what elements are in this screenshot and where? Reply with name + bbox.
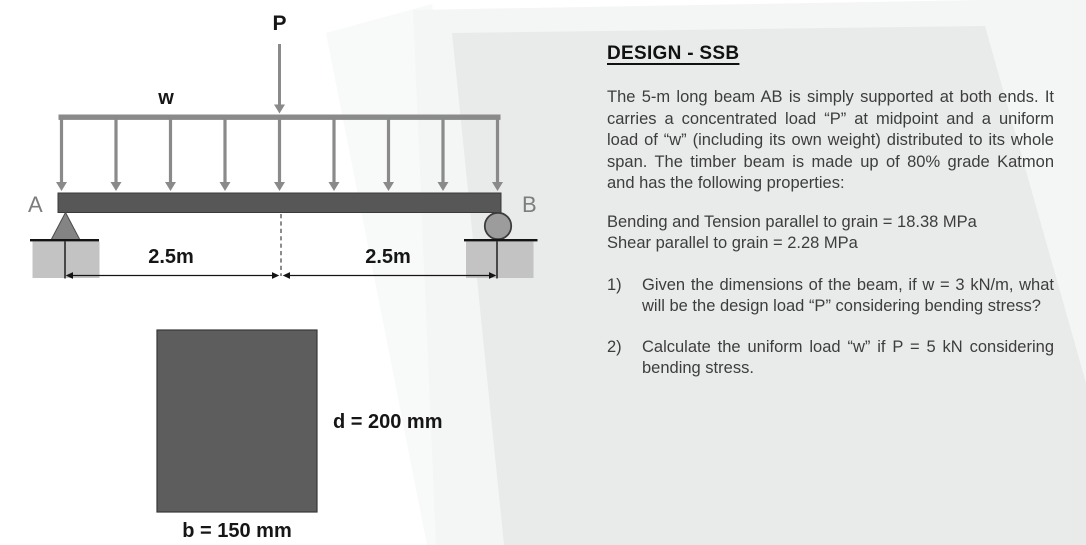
pin-support	[51, 213, 80, 241]
udl-arrows	[62, 118, 498, 183]
material-properties: Bending and Tension parallel to grain = …	[607, 212, 1054, 255]
dim-label-right: 2.5m	[365, 246, 411, 268]
foundation-left	[33, 242, 100, 279]
udl-label: w	[157, 87, 174, 109]
beam	[58, 193, 501, 213]
problem-panel: DESIGN - SSB The 5-m long beam AB is sim…	[607, 44, 1054, 399]
property-line: Shear parallel to grain = 2.28 MPa	[607, 233, 1054, 255]
support-a-label: A	[28, 192, 43, 217]
property-line: Bending and Tension parallel to grain = …	[607, 212, 1054, 234]
question-text: Given the dimensions of the beam, if w =…	[642, 275, 1054, 318]
roller-support	[485, 213, 511, 239]
question-item: 2) Calculate the uniform load “w” if P =…	[607, 337, 1054, 380]
section-depth-label: d = 200 mm	[333, 411, 443, 433]
problem-title: DESIGN - SSB	[607, 44, 1054, 64]
question-number: 2)	[607, 337, 642, 380]
ground-line-right	[464, 239, 538, 241]
foundation-right	[466, 242, 534, 279]
beam-figure: P w A B 2.5	[0, 0, 560, 545]
question-item: 1) Given the dimensions of the beam, if …	[607, 275, 1054, 318]
support-b-label: B	[522, 192, 537, 217]
problem-description: The 5-m long beam AB is simply supported…	[607, 87, 1054, 195]
slide: P w A B 2.5	[0, 0, 1086, 545]
ground-line-left	[30, 239, 99, 241]
question-number: 1)	[607, 275, 642, 318]
dim-label-left: 2.5m	[148, 246, 194, 268]
point-load-label: P	[272, 12, 286, 35]
cross-section	[157, 330, 317, 512]
section-width-label: b = 150 mm	[182, 520, 292, 542]
question-text: Calculate the uniform load “w” if P = 5 …	[642, 337, 1054, 380]
